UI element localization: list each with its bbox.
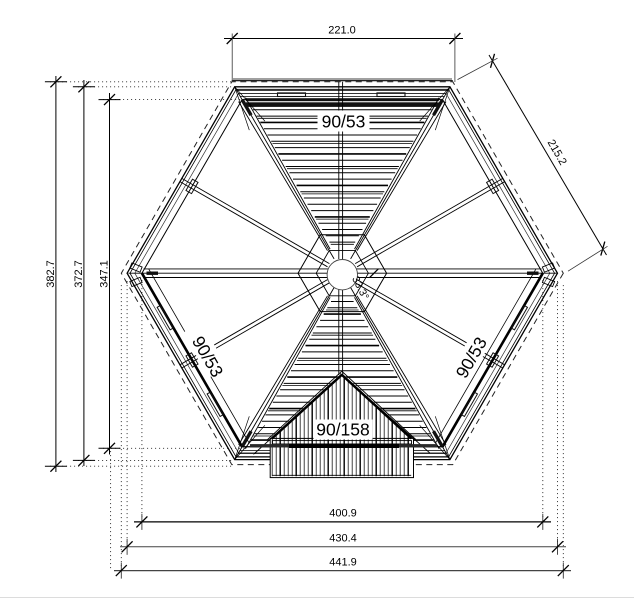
svg-text:372.7: 372.7 <box>73 260 85 288</box>
svg-text:90/158: 90/158 <box>316 420 370 440</box>
svg-text:347.1: 347.1 <box>99 260 111 288</box>
svg-text:382.7: 382.7 <box>45 260 57 288</box>
svg-text:221.0: 221.0 <box>328 25 356 37</box>
svg-text:90/53: 90/53 <box>322 112 366 132</box>
svg-text:400.9: 400.9 <box>329 508 357 520</box>
svg-text:430.4: 430.4 <box>329 533 357 545</box>
svg-text:441.9: 441.9 <box>329 557 357 569</box>
